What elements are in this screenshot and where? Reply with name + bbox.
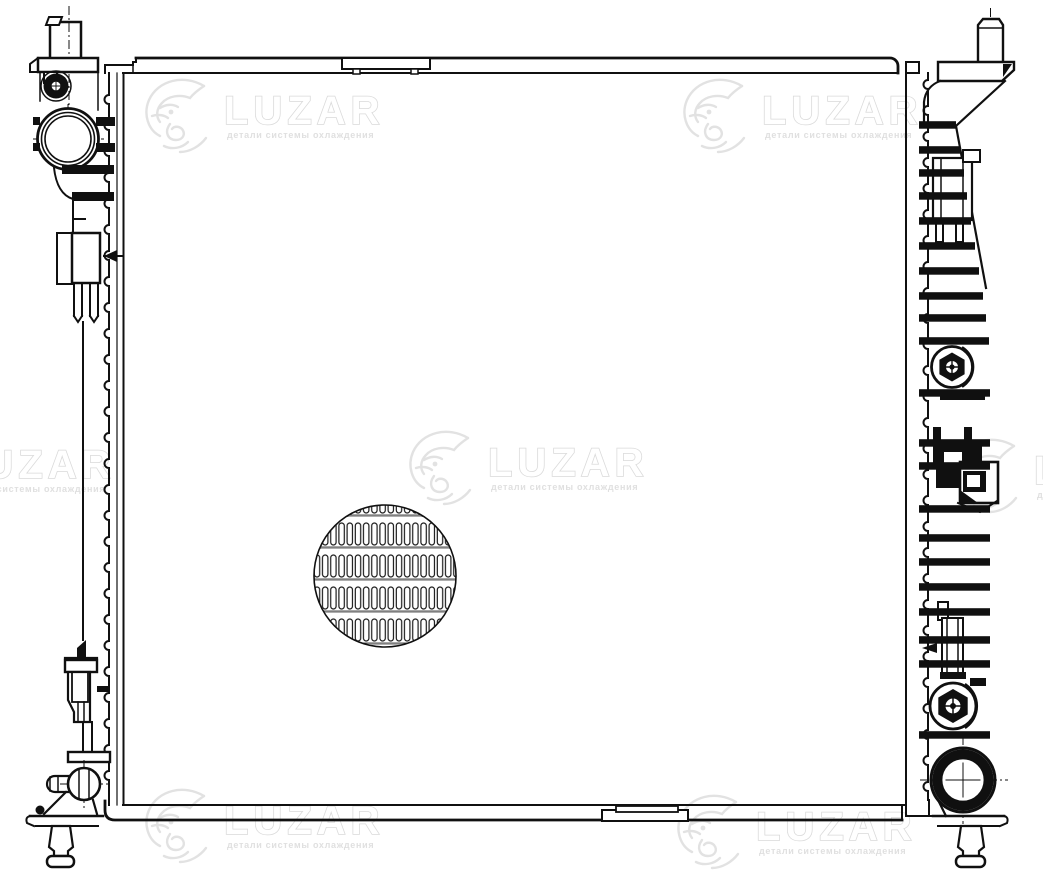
outlet-port (920, 736, 1008, 824)
top-right-bracket (906, 62, 1014, 81)
watermark-top-left (146, 80, 384, 152)
lower-sensor-boss (930, 678, 986, 729)
filler-neck (46, 17, 81, 58)
radiator-technical-drawing: LUZAR детали системы охлаждения (0, 0, 1043, 889)
radiator-core (105, 73, 929, 805)
watermark-mid-left (0, 434, 116, 506)
bleed-screw (41, 71, 71, 101)
left-mounting-foot (26, 792, 103, 867)
left-mounting-pin (49, 826, 73, 856)
core-fin-detail-view (314, 505, 456, 647)
watermark-mid-center (410, 432, 648, 504)
clamp-bracket (57, 233, 123, 322)
watermark-bottom-left (146, 790, 384, 862)
right-fittings (906, 347, 1008, 868)
lower-clamp-bracket (65, 640, 110, 722)
drain-valve (47, 752, 110, 808)
top-tab (342, 58, 430, 69)
watermark-layer (0, 80, 1043, 868)
watermark-bottom-right (678, 796, 916, 868)
inlet-port (33, 104, 115, 174)
top-mounting-pin (978, 19, 1003, 62)
right-side-plate-scallops (924, 73, 929, 800)
drawing-canvas: LUZAR детали системы охлаждения (0, 0, 1043, 889)
left-side-plate-scallops (105, 73, 109, 805)
watermark-top-right (684, 80, 922, 152)
top-header (105, 58, 898, 74)
right-mounting-pin (958, 826, 984, 856)
